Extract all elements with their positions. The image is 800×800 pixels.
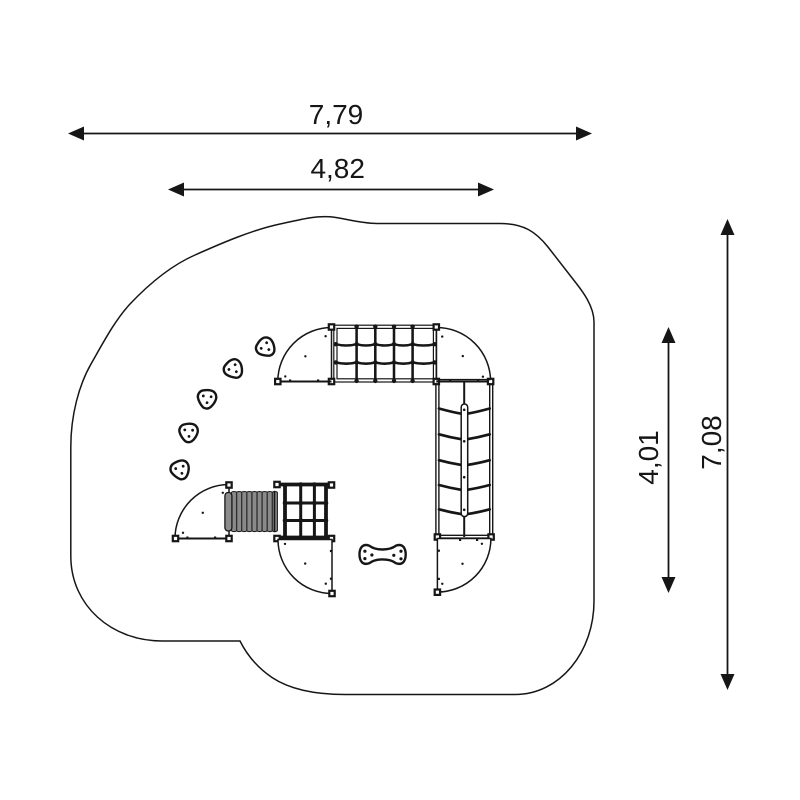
svg-text:7,08: 7,08 xyxy=(696,415,727,470)
svg-text:4,01: 4,01 xyxy=(633,430,664,485)
svg-text:4,82: 4,82 xyxy=(310,153,365,184)
svg-text:7,79: 7,79 xyxy=(309,99,364,130)
